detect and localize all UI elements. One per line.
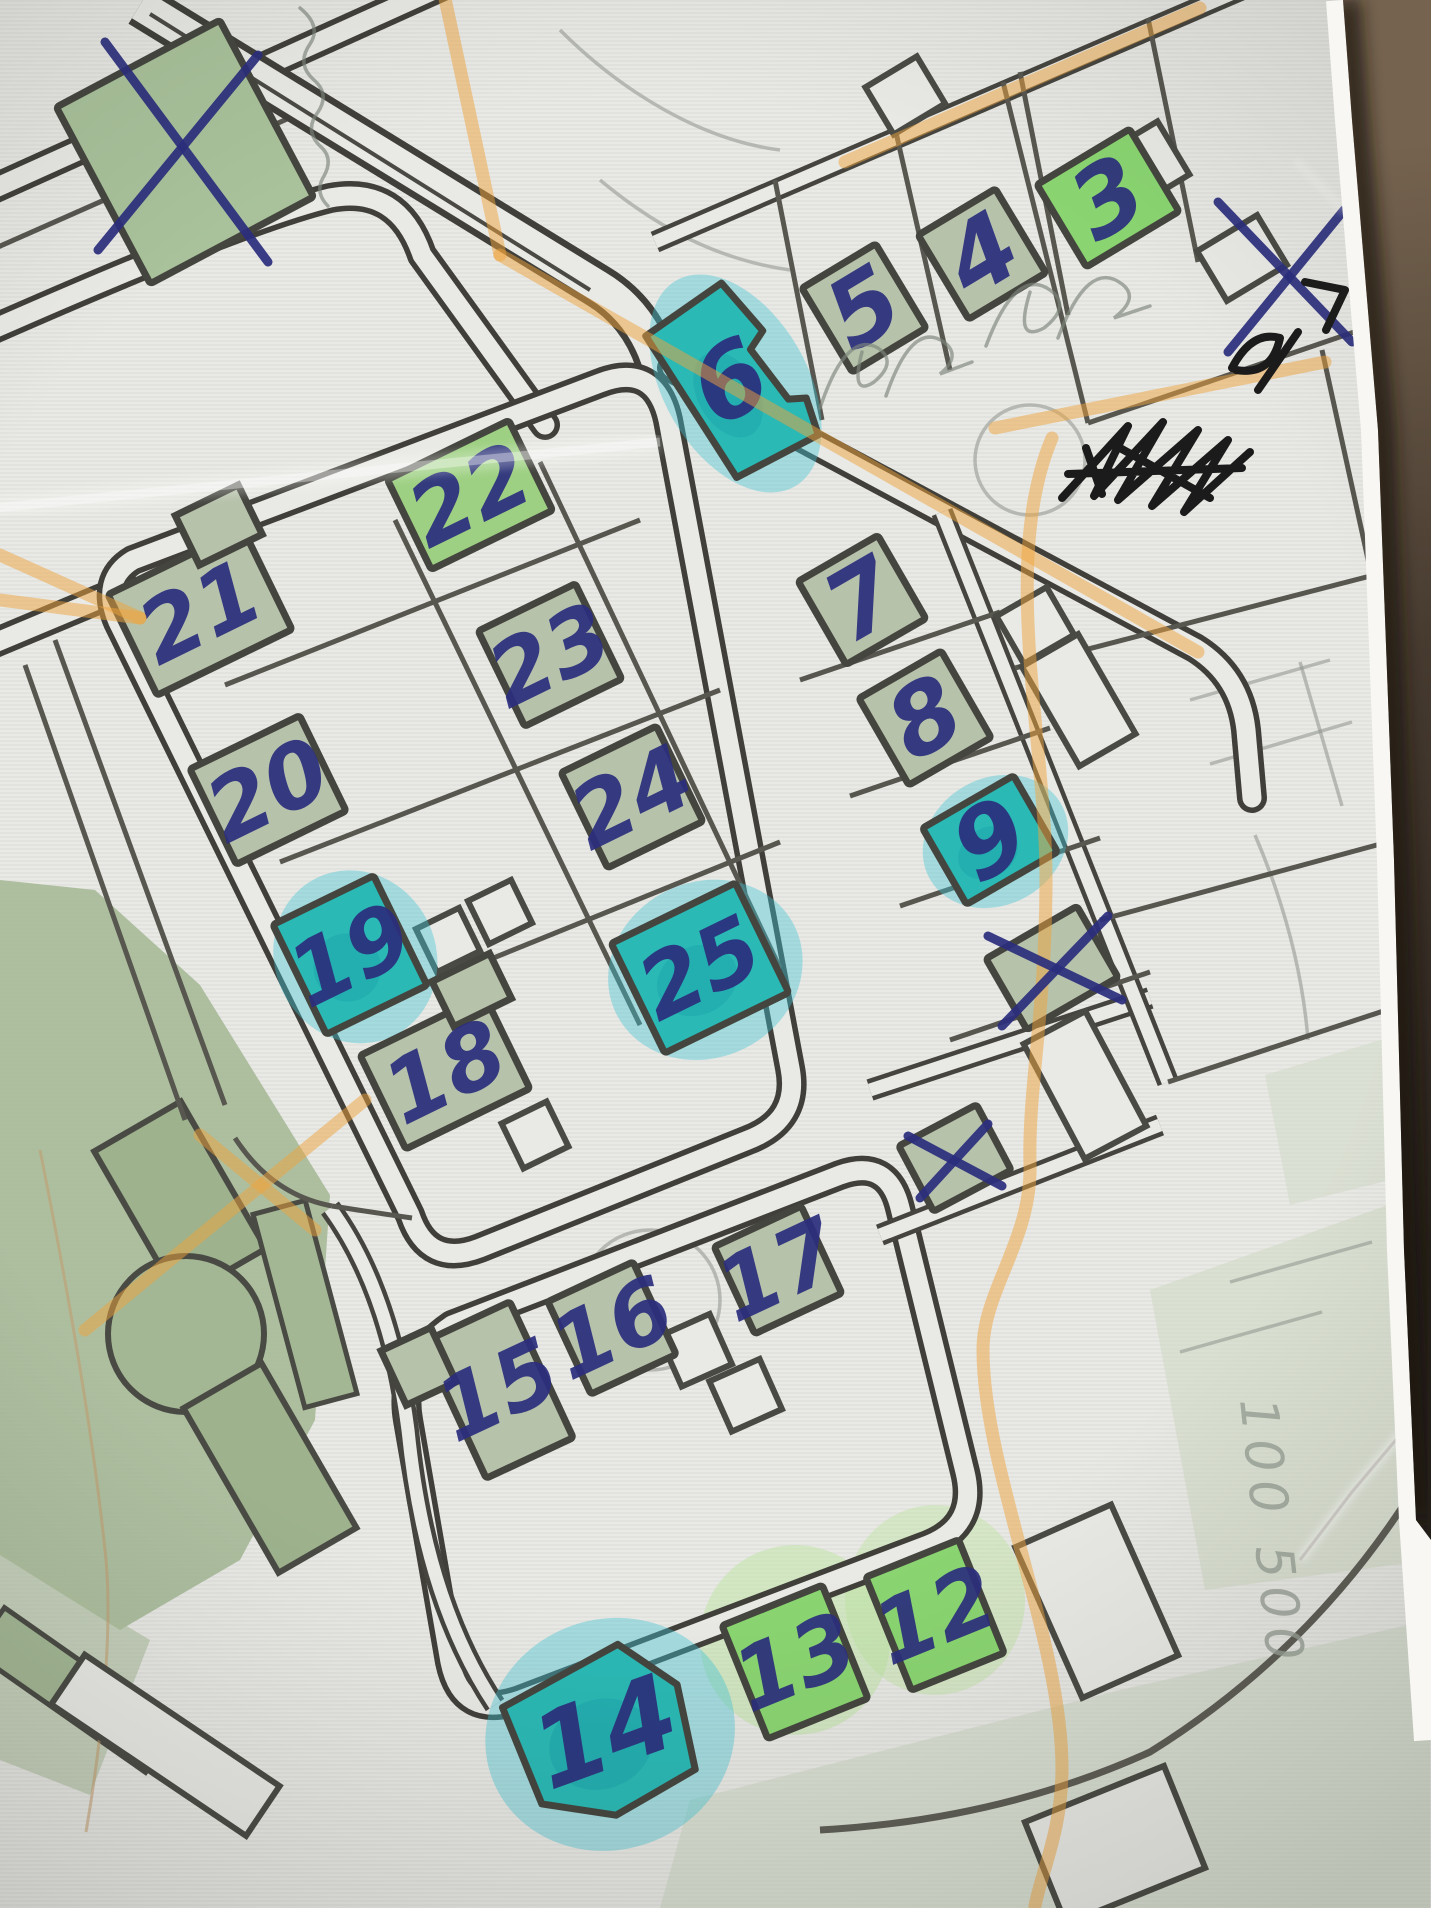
- photo-of-annotated-map: 34567892221232024192518171615141312 100 …: [0, 0, 1431, 1908]
- photo-vignette: [0, 0, 1431, 1908]
- map-scene: 34567892221232024192518171615141312 100 …: [0, 0, 1431, 1908]
